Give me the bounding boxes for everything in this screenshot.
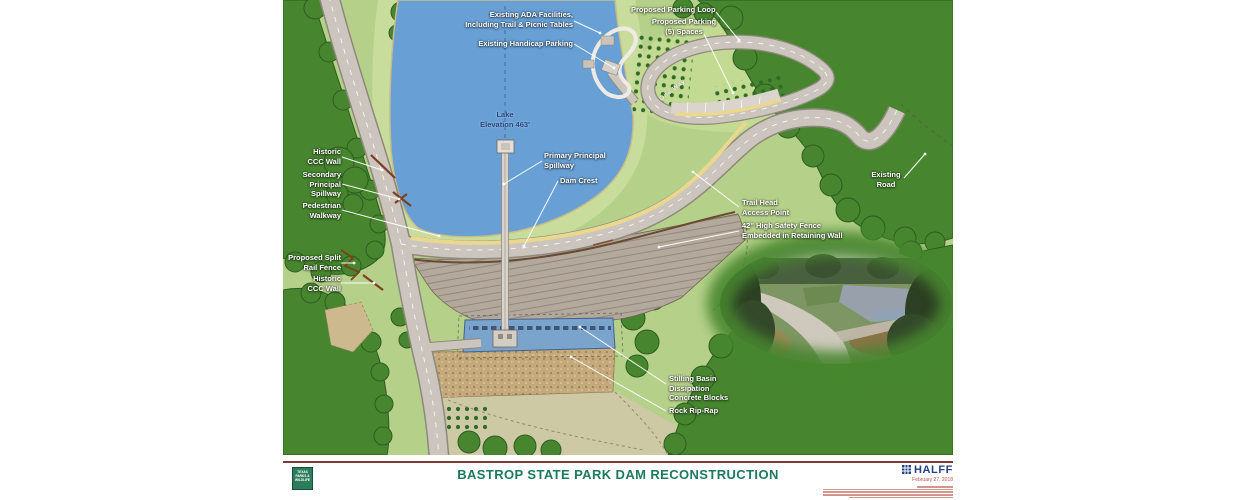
label-high-safety-fence: 42" High Safety Fence Embedded in Retain… bbox=[742, 221, 864, 240]
label-line: CCC Wall bbox=[291, 284, 341, 294]
label-line: Secondary bbox=[291, 170, 341, 180]
fine-print-line bbox=[917, 486, 953, 488]
label-line: Dissipation bbox=[669, 384, 749, 394]
label-dam-crest: Dam Crest bbox=[560, 176, 610, 186]
label-line: Trail Head bbox=[742, 198, 802, 208]
rip-rap bbox=[425, 348, 615, 398]
label-line: (5) Spaces bbox=[649, 27, 719, 37]
label-line: Dam Crest bbox=[560, 176, 610, 186]
label-line: Historic bbox=[291, 274, 341, 284]
label-historic-ccc-wall-upper: Historic CCC Wall bbox=[291, 147, 341, 166]
site-plan-map: Existing ADA Facilities, Including Trail… bbox=[283, 0, 953, 455]
concrete-blocks-row bbox=[469, 326, 611, 334]
label-line: Concrete Blocks bbox=[669, 393, 749, 403]
label-stilling-basin: Stilling Basin Dissipation Concrete Bloc… bbox=[669, 374, 749, 403]
label-existing-ada-facilities: Existing ADA Facilities, Including Trail… bbox=[401, 10, 573, 29]
label-historic-ccc-wall-lower: Historic CCC Wall bbox=[291, 274, 341, 293]
label-line: Existing Handicap Parking bbox=[401, 39, 573, 49]
label-secondary-principal-spillway: Secondary Principal Spillway bbox=[291, 170, 341, 199]
label-pedestrian-walkway: Pedestrian Walkway bbox=[291, 201, 341, 220]
fine-print-line bbox=[823, 489, 953, 491]
page: Existing ADA Facilities, Including Trail… bbox=[0, 0, 1235, 500]
label-proposed-parking-loop: Proposed Parking Loop bbox=[631, 5, 721, 15]
label-line: Lake bbox=[466, 110, 544, 120]
footer-rule-line bbox=[283, 461, 953, 463]
halff-logo: HALFF bbox=[820, 464, 953, 476]
label-line: Embedded in Retaining Wall bbox=[742, 231, 864, 241]
label-line: Access Point bbox=[742, 208, 802, 218]
label-primary-principal-spillway: Primary Principal Spillway bbox=[544, 151, 624, 170]
label-line: Walkway bbox=[291, 211, 341, 221]
label-line: Proposed Parking Loop bbox=[631, 5, 721, 15]
label-line: Including Trail & Picnic Tables bbox=[401, 20, 573, 30]
date-text: February 27, 2018 bbox=[820, 477, 953, 483]
label-line: Principal bbox=[291, 180, 341, 190]
fine-print-line bbox=[823, 494, 953, 496]
label-rock-rip-rap: Rock Rip-Rap bbox=[669, 406, 741, 416]
fine-print-line bbox=[823, 491, 953, 493]
label-proposed-split-rail-fence: Proposed Split Rail Fence bbox=[283, 253, 341, 272]
fine-print-line bbox=[849, 497, 953, 499]
tpwd-logo-line: WILDLIFE bbox=[293, 479, 312, 483]
label-existing-road: Existing Road bbox=[863, 170, 909, 189]
label-lake-elevation: Lake Elevation 463' bbox=[466, 110, 544, 129]
label-line: Stilling Basin bbox=[669, 374, 749, 384]
label-line: Existing bbox=[863, 170, 909, 180]
fine-print-disclaimer bbox=[820, 486, 953, 498]
label-line: CCC Wall bbox=[291, 157, 341, 167]
label-existing-handicap-parking: Existing Handicap Parking bbox=[401, 39, 573, 49]
halff-block: HALFF February 27, 2018 bbox=[820, 464, 953, 498]
label-line: Rock Rip-Rap bbox=[669, 406, 741, 416]
halff-grid-icon bbox=[901, 465, 911, 475]
label-line: Existing ADA Facilities, bbox=[401, 10, 573, 20]
tpwd-logo: TEXAS PARKS & WILDLIFE bbox=[292, 467, 313, 490]
label-line: Road bbox=[863, 180, 909, 190]
label-line: Spillway bbox=[291, 189, 341, 199]
label-line: Historic bbox=[291, 147, 341, 157]
label-line: 42" High Safety Fence bbox=[742, 221, 864, 231]
label-line: Spillway bbox=[544, 161, 624, 171]
label-line: Proposed Split bbox=[283, 253, 341, 263]
label-line: Proposed Parking bbox=[649, 17, 719, 27]
label-proposed-parking-5-spaces: Proposed Parking (5) Spaces bbox=[649, 17, 719, 36]
label-line: Pedestrian bbox=[291, 201, 341, 211]
label-line: Rail Fence bbox=[283, 263, 341, 273]
label-line: Primary Principal bbox=[544, 151, 624, 161]
label-trail-head-access-point: Trail Head Access Point bbox=[742, 198, 802, 217]
label-line: Elevation 463' bbox=[466, 120, 544, 130]
halff-name: HALFF bbox=[914, 464, 953, 476]
